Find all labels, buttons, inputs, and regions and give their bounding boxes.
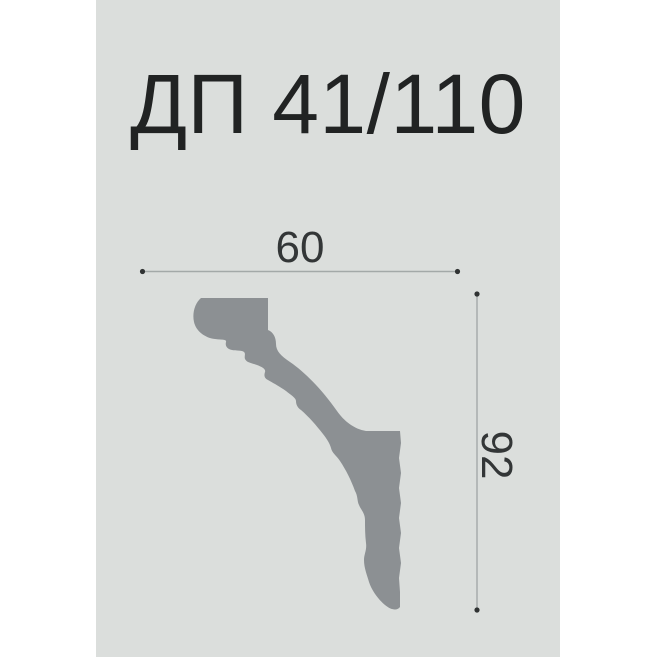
- width-dimension-dot-left: [140, 269, 145, 274]
- width-dimension-dot-right: [455, 269, 460, 274]
- height-dimension-label: 92: [474, 431, 518, 480]
- width-dimension-label: 60: [276, 226, 325, 270]
- product-image-page: ДП 41/110 60 92: [0, 0, 657, 657]
- profile-drawing: [0, 0, 657, 657]
- molding-profile-shape: [193, 298, 401, 609]
- height-dimension-dot-bottom: [474, 607, 479, 612]
- height-dimension-dot-top: [474, 291, 479, 296]
